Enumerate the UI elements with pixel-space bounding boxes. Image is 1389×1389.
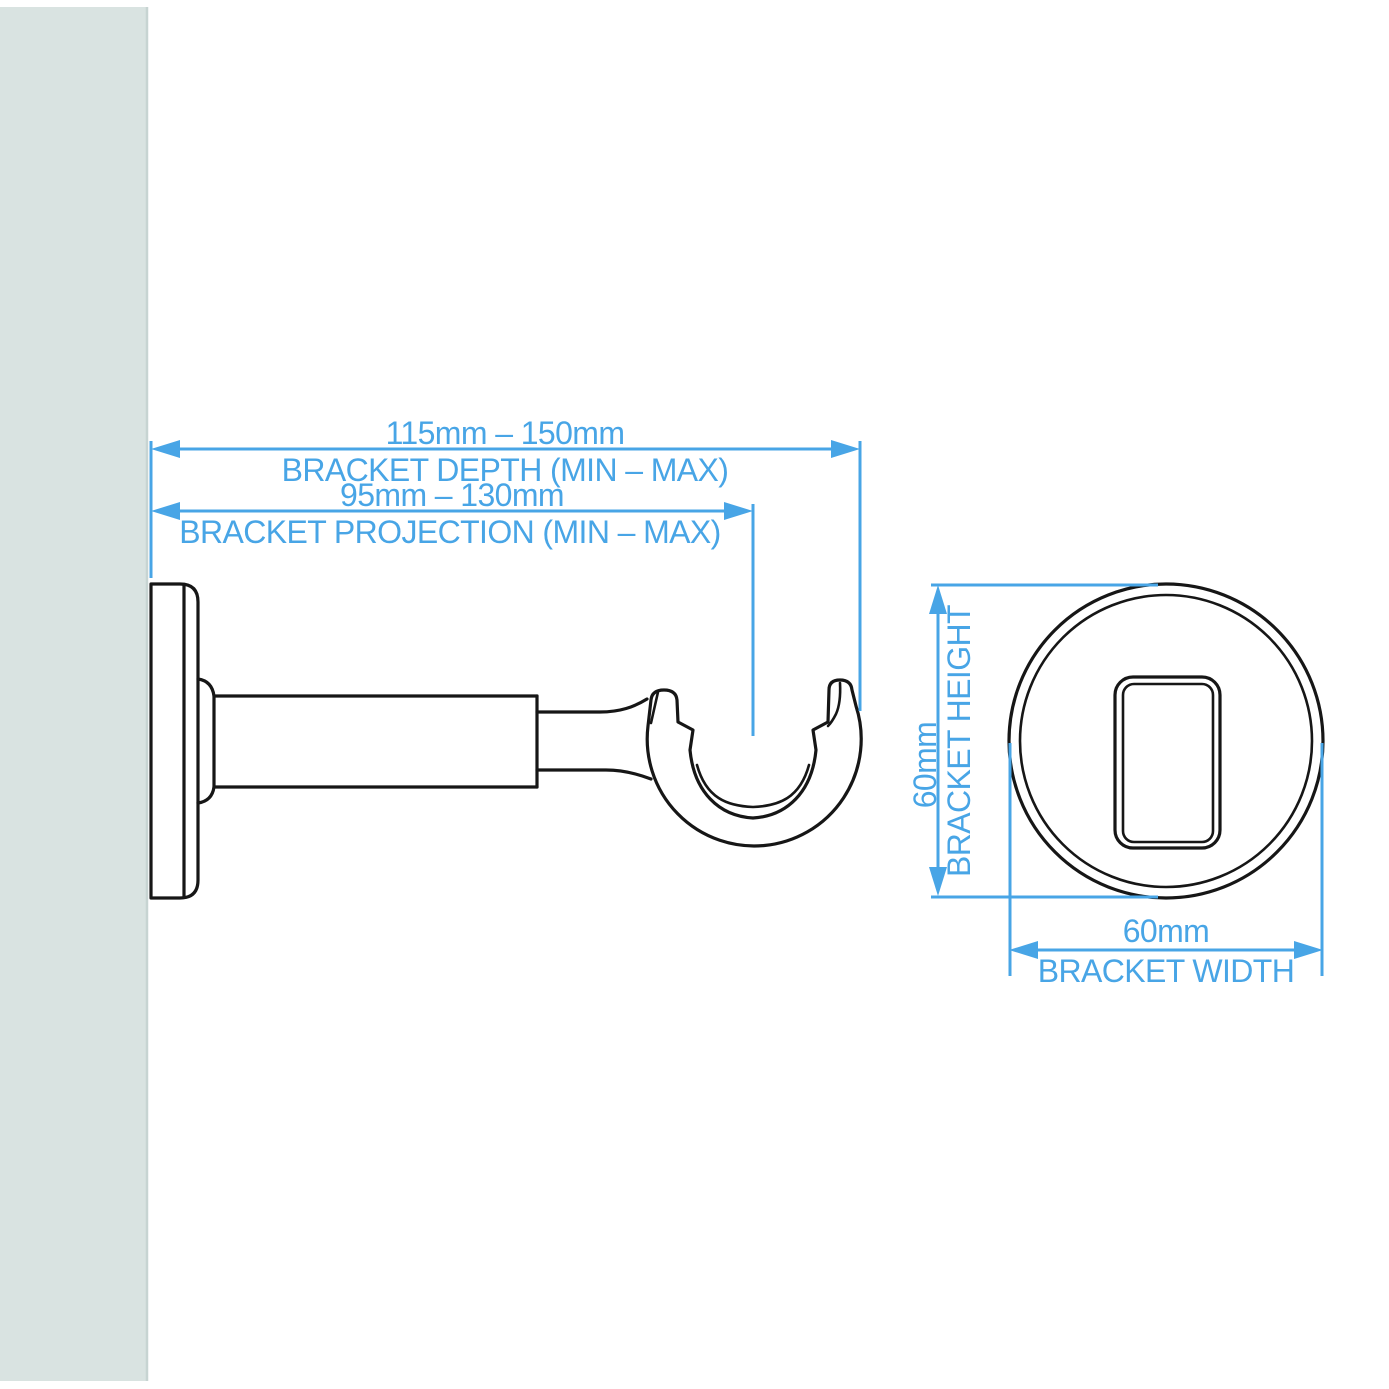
rod-bottom-edge — [537, 770, 651, 779]
projection-arrow-right-icon — [724, 502, 753, 520]
wall-plate — [151, 584, 198, 898]
projection-text-label: BRACKET PROJECTION (MIN – MAX) — [179, 514, 720, 550]
width-arrow-left-icon — [1009, 941, 1038, 959]
depth-arrow-left-icon — [151, 440, 180, 458]
rod-top-edge — [537, 699, 647, 712]
plate-outer-circle — [1009, 584, 1323, 898]
projection-value-label: 95mm – 130mm — [340, 477, 564, 513]
diagram-canvas: 115mm – 150mm BRACKET DEPTH (MIN – MAX) … — [0, 0, 1389, 1389]
width-value-label: 60mm — [1123, 913, 1210, 949]
bracket-dimension-diagram: 115mm – 150mm BRACKET DEPTH (MIN – MAX) … — [0, 0, 1389, 1389]
bracket-stem — [198, 679, 537, 803]
wall-strip — [0, 7, 148, 1381]
width-text-label: BRACKET WIDTH — [1038, 953, 1295, 989]
depth-value-label: 115mm – 150mm — [386, 415, 625, 451]
projection-arrow-left-icon — [151, 502, 180, 520]
height-text-label: BRACKET HEIGHT — [941, 605, 977, 877]
slot-inner-outline — [1123, 684, 1213, 842]
height-dimension: 60mm BRACKET HEIGHT — [907, 585, 1158, 897]
bracket-rod — [537, 699, 651, 779]
slot-outer-outline — [1115, 677, 1220, 848]
stem-bottom-edge — [198, 787, 537, 803]
stem-top-edge — [198, 679, 537, 696]
height-value-label: 60mm — [907, 722, 943, 809]
depth-arrow-right-icon — [831, 440, 860, 458]
bracket-side-view — [151, 584, 861, 898]
width-dimension: 60mm BRACKET WIDTH — [1009, 743, 1323, 989]
bracket-front-view — [1009, 584, 1323, 898]
width-arrow-right-icon — [1294, 941, 1323, 959]
wall-surface — [0, 7, 148, 1381]
